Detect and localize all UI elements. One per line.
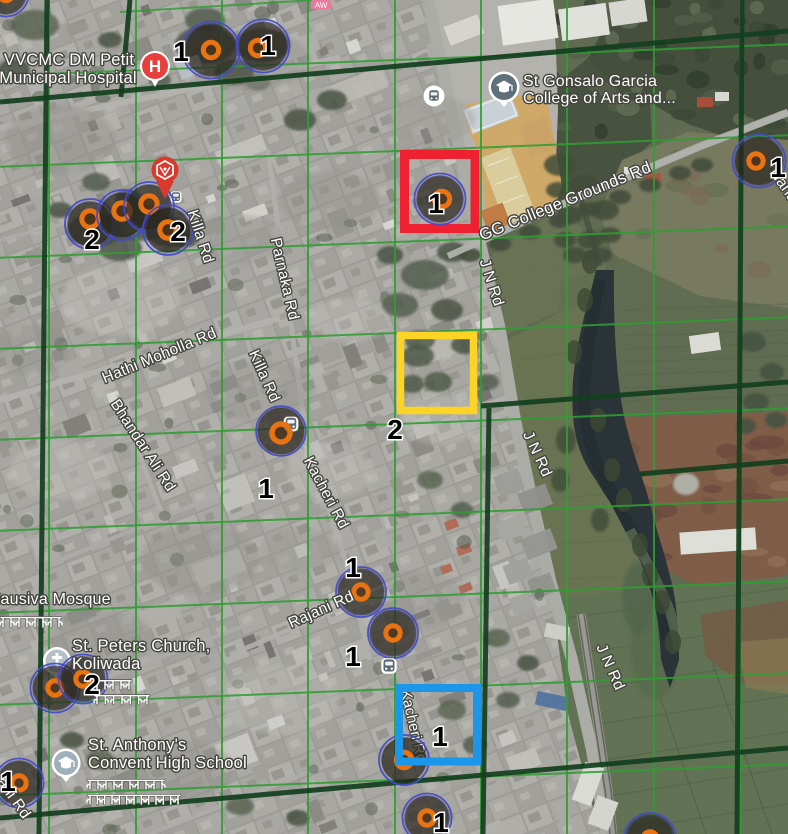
svg-text:Municipal Hospital: Municipal Hospital <box>0 69 137 87</box>
svg-text:College of Arts and...: College of Arts and... <box>523 90 676 107</box>
svg-text:1: 1 <box>428 188 444 219</box>
svg-text:Convent High School: Convent High School <box>88 754 247 772</box>
svg-text:Mausiva Mosque: Mausiva Mosque <box>0 591 111 608</box>
svg-text:1: 1 <box>433 807 449 834</box>
svg-text:AW: AW <box>315 1 328 10</box>
svg-text:VVCMC DM Petit: VVCMC DM Petit <box>4 51 134 69</box>
svg-text:1: 1 <box>432 721 448 752</box>
svg-text:1: 1 <box>345 641 361 672</box>
svg-text:2: 2 <box>170 216 186 247</box>
svg-text:2: 2 <box>84 224 100 255</box>
svg-text:2: 2 <box>387 414 403 445</box>
svg-text:1: 1 <box>258 473 274 504</box>
svg-text:2: 2 <box>84 669 100 700</box>
svg-text:1: 1 <box>0 766 16 797</box>
svg-text:St. Anthony's: St. Anthony's <box>88 736 186 754</box>
svg-text:H: H <box>149 57 161 76</box>
svg-text:St. Peters Church,: St. Peters Church, <box>72 637 210 655</box>
svg-text:St Gonsalo Garcia: St Gonsalo Garcia <box>523 73 657 90</box>
svg-text:1: 1 <box>260 30 276 61</box>
svg-text:1: 1 <box>770 152 786 183</box>
svg-text:1: 1 <box>345 552 361 583</box>
svg-text:1: 1 <box>173 36 189 67</box>
svg-text:Koliwada: Koliwada <box>72 655 141 673</box>
